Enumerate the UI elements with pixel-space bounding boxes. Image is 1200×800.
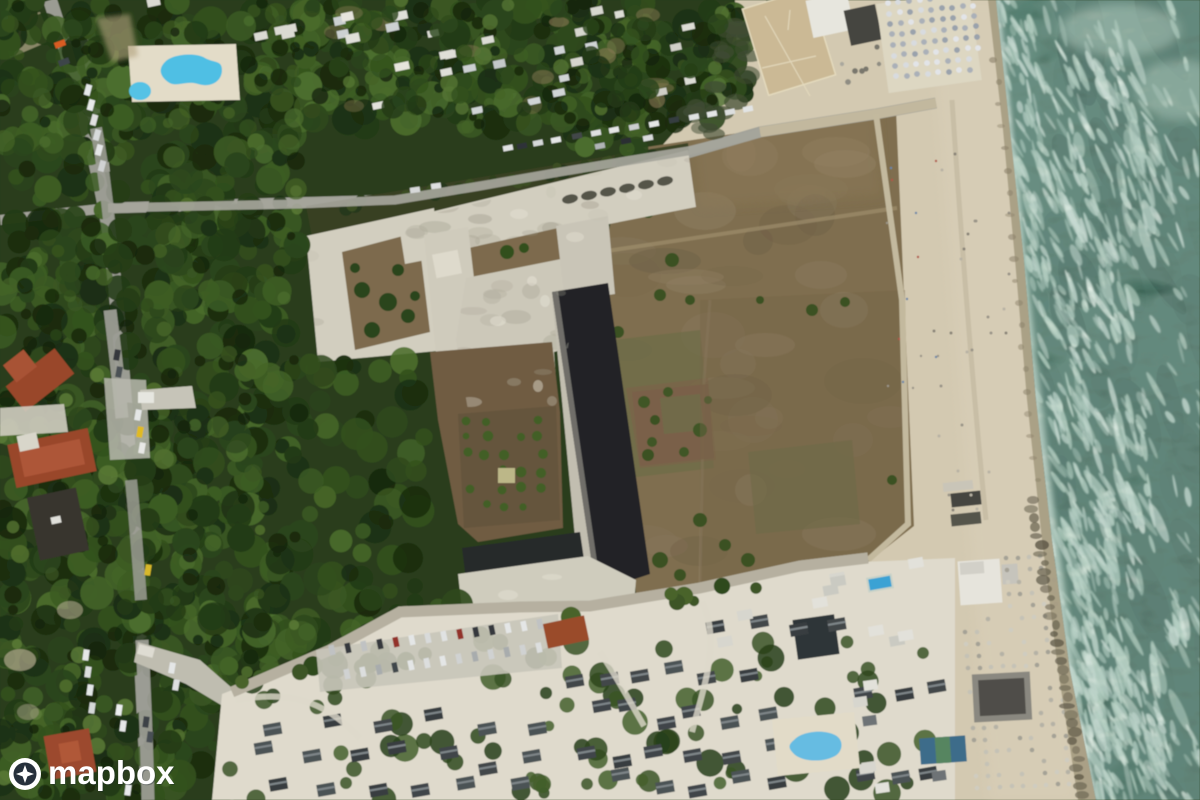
svg-text:mapbox: mapbox [48, 754, 175, 791]
